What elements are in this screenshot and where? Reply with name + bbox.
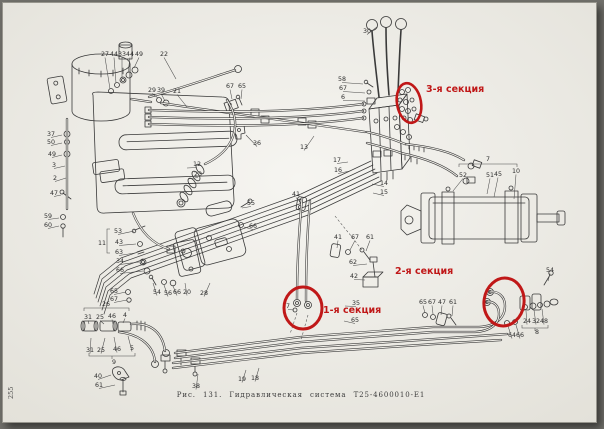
- part-number: 49: [135, 51, 143, 58]
- part-number: 67: [226, 83, 234, 90]
- part-number: 65: [110, 288, 118, 295]
- part-number: 25: [96, 314, 104, 321]
- part-number: 8: [535, 329, 539, 336]
- figure-caption: Рис. 131. Гидравлическая система Т25-460…: [177, 391, 425, 399]
- part-number: 44: [110, 51, 118, 58]
- part-number: 54: [153, 289, 161, 296]
- part-number: 65: [238, 83, 246, 90]
- page-number: 255: [7, 387, 15, 399]
- part-number: 36: [253, 140, 261, 147]
- scanned-page: 2744334449222939213058676676536133750493…: [2, 2, 597, 423]
- part-number: 46: [113, 346, 121, 353]
- part-number: 29: [148, 87, 156, 94]
- part-number: 26: [102, 301, 110, 308]
- part-number: 54: [546, 267, 554, 274]
- part-number: 40: [94, 373, 102, 380]
- part-number: 58: [338, 76, 346, 83]
- part-number: 59: [44, 213, 52, 220]
- part-number: 7: [486, 156, 490, 163]
- part-number: 42: [350, 273, 358, 280]
- part-number: 65: [419, 299, 427, 306]
- part-number: 67: [339, 85, 347, 92]
- part-number: 46: [108, 313, 116, 320]
- hydraulic-system-diagram: 2744334449222939213058676676536133750493…: [3, 3, 596, 422]
- part-number: 2: [53, 175, 57, 182]
- part-number: 37: [47, 131, 55, 138]
- part-number: 41: [292, 191, 300, 198]
- part-number: 21: [173, 88, 181, 95]
- part-number: 66: [173, 289, 181, 296]
- scanned-page-container: 2744334449222939213058676676536133750493…: [0, 0, 604, 429]
- part-number: 61: [366, 234, 374, 241]
- part-number: 24: [523, 318, 531, 325]
- part-number: 43: [115, 239, 123, 246]
- part-number: 53: [114, 228, 122, 235]
- part-number: 27: [101, 51, 109, 58]
- part-number: 6: [341, 94, 345, 101]
- part-number: 17: [333, 157, 341, 164]
- part-number: 61: [95, 382, 103, 389]
- part-number: 5: [130, 345, 134, 352]
- part-number: 20: [183, 289, 191, 296]
- part-number: 34: [116, 258, 124, 265]
- part-number: 31: [84, 314, 92, 321]
- part-number: 28: [200, 290, 208, 297]
- part-number: 38: [192, 383, 200, 390]
- part-number: 9: [112, 359, 116, 366]
- part-number: 55: [247, 200, 255, 207]
- part-number: 3: [52, 162, 56, 169]
- part-number: 14: [380, 180, 388, 187]
- part-number: 67: [110, 296, 118, 303]
- part-number: 7: [286, 303, 290, 310]
- part-number: 39: [157, 87, 165, 94]
- part-number: 44: [126, 51, 134, 58]
- section-label: 2-я секция: [395, 266, 453, 277]
- part-number: 41: [334, 234, 342, 241]
- part-number: 23: [194, 171, 202, 178]
- part-number: 61: [449, 299, 457, 306]
- part-number: 10: [512, 168, 520, 175]
- part-number: 52: [459, 172, 467, 179]
- part-number: 66: [116, 267, 124, 274]
- part-number: 63: [115, 249, 123, 256]
- part-number: 19: [238, 376, 246, 383]
- part-number: 67: [351, 234, 359, 241]
- part-number: 49: [48, 151, 56, 158]
- part-number: 4: [123, 312, 127, 319]
- part-number: 16: [334, 167, 342, 174]
- part-number: 50: [47, 139, 55, 146]
- part-number: 12: [193, 161, 201, 168]
- part-number: 66: [249, 223, 257, 230]
- part-number: 15: [380, 189, 388, 196]
- part-number: 11: [98, 240, 106, 247]
- part-number: 47: [50, 190, 58, 197]
- part-number: 62: [349, 259, 357, 266]
- part-number: 31: [86, 347, 94, 354]
- part-number: 60: [44, 222, 52, 229]
- part-number: 47: [438, 299, 446, 306]
- part-number: 51: [486, 172, 494, 179]
- section-label: 3-я секция: [426, 84, 484, 95]
- part-number: 66: [516, 332, 524, 339]
- part-number: 32: [532, 318, 540, 325]
- part-number: 13: [300, 144, 308, 151]
- part-number: 48: [540, 318, 548, 325]
- part-number: 64: [508, 332, 516, 339]
- paper-background: [3, 3, 596, 422]
- part-number: 67: [428, 299, 436, 306]
- part-number: 22: [160, 51, 168, 58]
- section-label: 1-я секция: [323, 305, 381, 316]
- part-number: 30: [363, 28, 371, 35]
- part-number: 25: [97, 347, 105, 354]
- part-number: 45: [494, 171, 502, 178]
- part-number: 56: [164, 290, 172, 297]
- part-number: 18: [251, 375, 259, 382]
- part-number: 65: [351, 317, 359, 324]
- part-number: 33: [118, 51, 126, 58]
